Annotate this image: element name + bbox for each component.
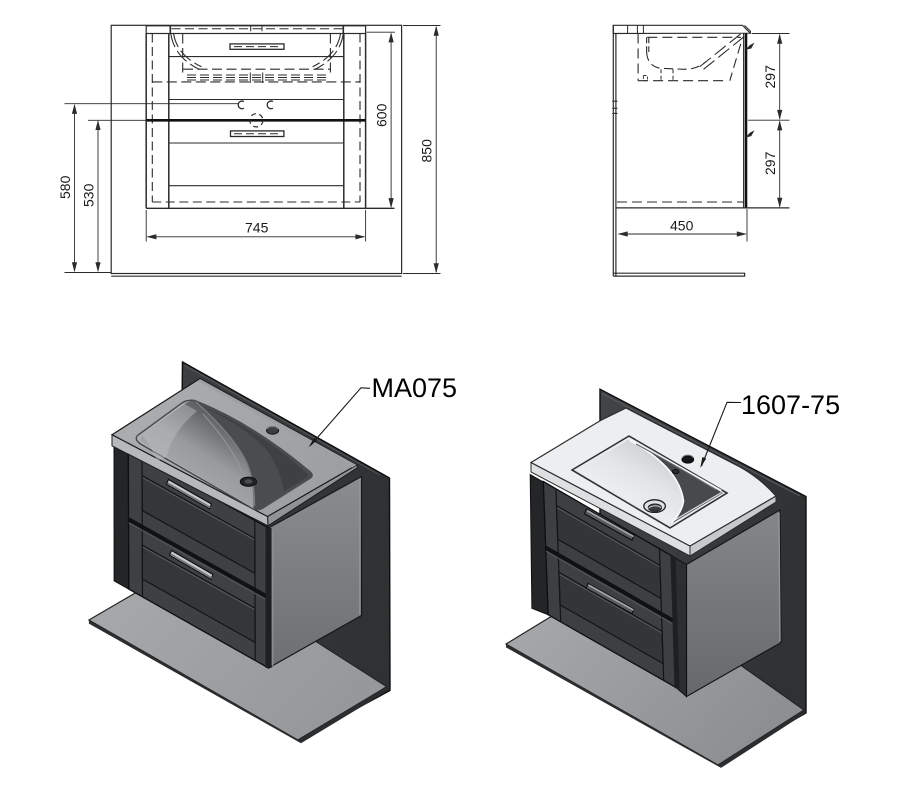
svg-text:MA075: MA075 (372, 373, 458, 403)
svg-text:297: 297 (762, 65, 778, 89)
svg-text:297: 297 (762, 151, 778, 175)
svg-text:850: 850 (419, 139, 435, 163)
svg-text:1607-75: 1607-75 (741, 390, 840, 420)
svg-text:600: 600 (373, 103, 389, 127)
svg-text:580: 580 (57, 175, 73, 199)
svg-text:450: 450 (670, 218, 694, 234)
svg-text:530: 530 (80, 183, 96, 207)
svg-text:745: 745 (245, 220, 269, 236)
